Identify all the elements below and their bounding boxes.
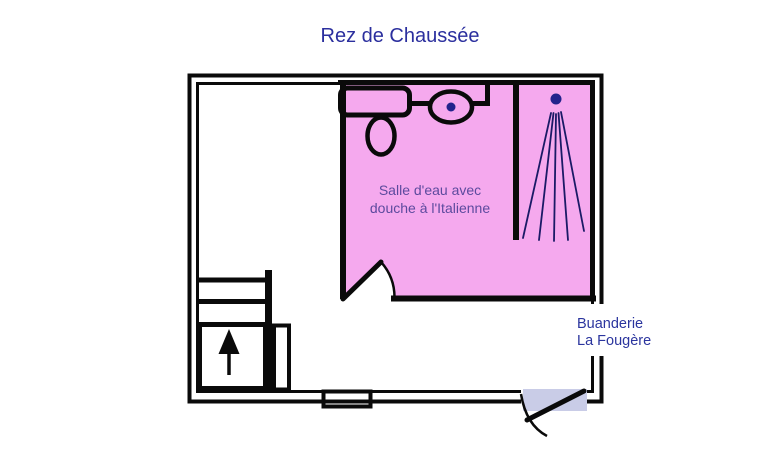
page-title: Rez de Chaussée bbox=[321, 25, 480, 47]
entrance-door bbox=[521, 389, 587, 436]
stair-side-wall bbox=[274, 326, 289, 390]
bathroom-label-line2: douche à l'Italienne bbox=[370, 200, 490, 216]
floor-plan-canvas: Rez de Chaussée bbox=[0, 0, 780, 450]
stair-landing-box bbox=[200, 325, 266, 389]
building-label-line1: Buanderie bbox=[577, 316, 643, 332]
building-label-line2: La Fougère bbox=[577, 333, 651, 349]
staircase bbox=[197, 270, 289, 392]
window-icon bbox=[324, 392, 371, 407]
bathroom-label-line1: Salle d'eau avec bbox=[379, 182, 481, 198]
bathroom-room: Salle d'eau avec douche à l'Italienne bbox=[338, 80, 596, 301]
shower-head-dot bbox=[551, 94, 562, 105]
building-name-label: Buanderie La Fougère bbox=[577, 316, 651, 349]
washbasin-drain-dot bbox=[447, 103, 456, 112]
floor-plan-page: Rez de Chaussée bbox=[0, 0, 780, 450]
